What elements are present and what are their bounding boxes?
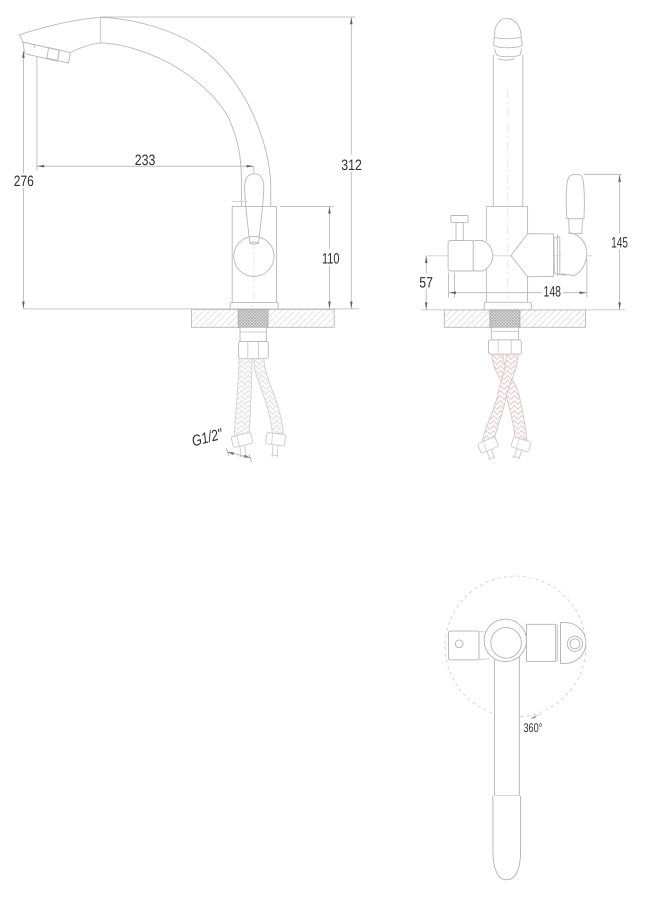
svg-text:57: 57 — [419, 274, 433, 291]
svg-text:110: 110 — [322, 251, 340, 268]
svg-text:360°: 360° — [524, 721, 543, 735]
svg-text:276: 276 — [14, 173, 34, 190]
svg-text:148: 148 — [544, 284, 562, 301]
svg-text:233: 233 — [135, 152, 156, 169]
svg-text:145: 145 — [611, 234, 628, 251]
svg-text:312: 312 — [341, 157, 362, 174]
